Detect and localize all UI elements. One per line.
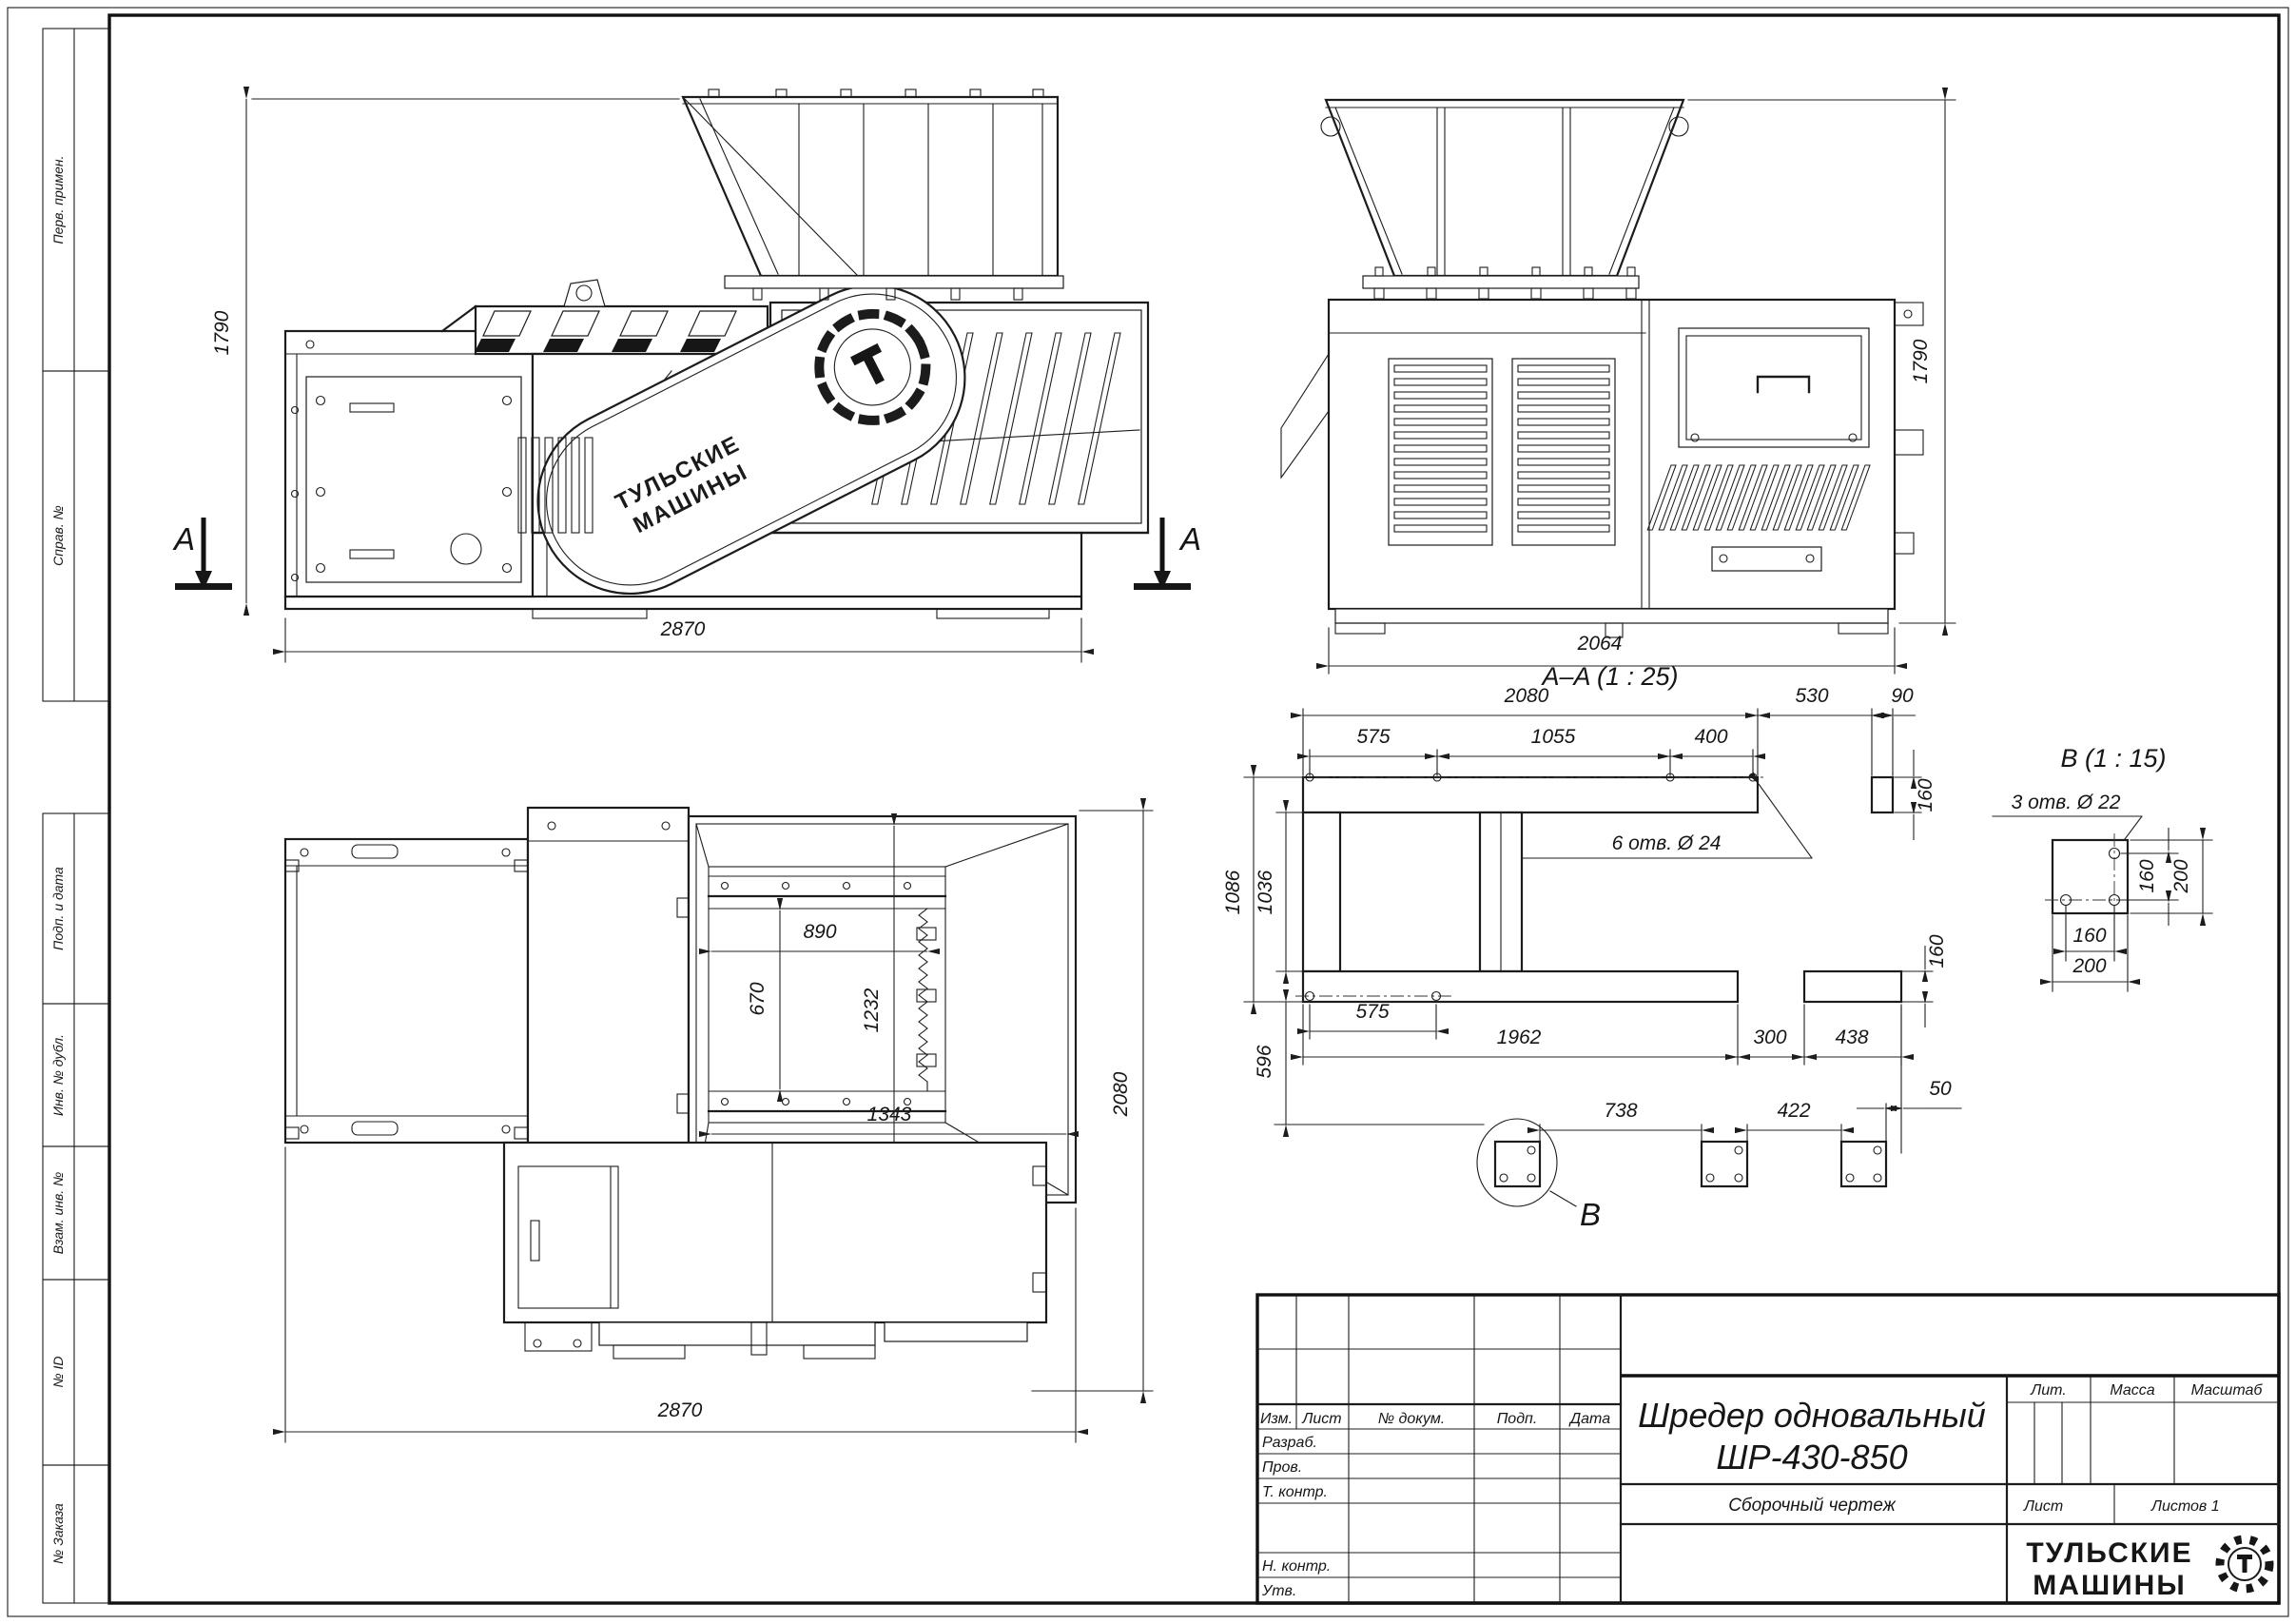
dim-label: 160 (2136, 859, 2158, 892)
tb-row-razrab: Разраб. (1262, 1435, 1317, 1451)
svg-text:A: A (1178, 521, 1201, 557)
dim-label: 1086 (1222, 870, 1244, 914)
foot-plate (1841, 1142, 1886, 1186)
margin-block-sprav-no: Справ. № (43, 371, 109, 701)
doc-title-line1: Шредер одновальный (1638, 1396, 1986, 1435)
tb-scale: Масштаб (2191, 1382, 2264, 1399)
dim-label-side-width: 2064 (1577, 633, 1623, 655)
margin-label: № Заказа (50, 1503, 66, 1564)
margin-label: Взам. инв. № (50, 1172, 66, 1255)
hole-note-aa: 6 отв. Ø 24 (1612, 832, 1722, 854)
dim-label: 1036 (1255, 870, 1276, 914)
margin-block-no-id: № ID (43, 1280, 109, 1465)
brand-line1: ТУЛЬСКИЕ (2026, 1537, 2192, 1569)
dim-label-front-height: 1790 (211, 310, 233, 355)
tb-row-utv: Утв. (1261, 1583, 1296, 1599)
tb-sheets: Листов 1 (2150, 1498, 2220, 1515)
dim-label: 530 (1795, 685, 1828, 707)
margin-block-no-zakaza: № Заказа (43, 1465, 109, 1603)
dim-label: 575 (1355, 1001, 1389, 1023)
dim-label: 1962 (1497, 1027, 1542, 1048)
side-louver-panel-left (1389, 359, 1492, 545)
dim-label: 575 (1356, 726, 1390, 748)
plan-view: 890 670 1232 1343 2080 2870 (285, 808, 1153, 1442)
brand-gear-icon (2220, 1539, 2269, 1589)
side-louver-panel-right (1512, 359, 1615, 545)
detail-b-mark: B (1580, 1197, 1601, 1232)
tb-sheet: Лист (2023, 1498, 2063, 1515)
dim-label: 160 (2072, 925, 2106, 947)
dim-label: 90 (1891, 685, 1914, 707)
dim-label-plan-width: 2870 (657, 1399, 703, 1421)
svg-text:A: A (172, 521, 195, 557)
dim-label-plan-inner-width: 1343 (867, 1104, 912, 1125)
title-block: Изм. Лист № докум. Подп. Дата Разраб. Пр… (1257, 1295, 2279, 1603)
foot-plate (1495, 1142, 1540, 1186)
front-hopper (683, 89, 1063, 300)
dim-label: 596 (1254, 1045, 1275, 1078)
margin-block-inv-dubl: Инв. № дубл. (43, 1004, 109, 1146)
margin-column: Перв. примен. Справ. № Подп. и дата Инв.… (43, 29, 109, 1603)
brand-line2: МАШИНЫ (2033, 1570, 2186, 1601)
section-aa-title: A–A (1 : 25) (1540, 662, 1678, 691)
margin-label: № ID (50, 1356, 66, 1387)
dim-label-plan-open-depth: 670 (747, 982, 769, 1015)
detail-b-title: B (1 : 15) (2060, 744, 2166, 773)
dim-label-front-width: 2870 (660, 618, 706, 640)
tb-col-list: Лист (1301, 1411, 1341, 1427)
detail-view-b: B (1 : 15) 3 отв. Ø 22 160 200 160 200 (1993, 744, 2212, 991)
margin-label: Справ. № (50, 505, 66, 566)
front-view: 1790 ТУЛЬСКИЕ МАШИНЫ (172, 89, 1201, 662)
dim-label: 50 (1929, 1078, 1952, 1100)
tb-col-dokum: № докум. (1378, 1411, 1445, 1427)
margin-label: Инв. № дубл. (50, 1034, 66, 1116)
tb-col-izm: Изм. (1260, 1411, 1293, 1427)
dim-label: 160 (1915, 778, 1936, 812)
section-mark-a-left: A (172, 518, 232, 590)
drawing-sheet: Перв. примен. Справ. № Подп. и дата Инв.… (0, 0, 2296, 1624)
margin-block-podp-data: Подп. и дата (43, 813, 109, 1004)
margin-label: Подп. и дата (50, 867, 66, 950)
dim-label: 738 (1604, 1100, 1637, 1122)
dim-label-plan-depth: 2080 (1110, 1071, 1132, 1117)
doc-title-line2: ШР-430-850 (1716, 1438, 1907, 1477)
margin-label: Перв. примен. (50, 155, 66, 244)
dim-label-plan-open-width: 890 (803, 921, 836, 943)
tb-mass: Масса (2110, 1382, 2154, 1399)
dim-label: 200 (2072, 955, 2106, 977)
dim-label: 300 (1753, 1027, 1786, 1048)
dim-label: 200 (2170, 859, 2192, 893)
dim-label-plan-inner-depth: 1232 (861, 988, 883, 1032)
tb-row-nkontr: Н. контр. (1262, 1558, 1331, 1575)
dim-label: 160 (1926, 934, 1948, 968)
dim-label: 422 (1777, 1100, 1810, 1122)
margin-block-perv-primen: Перв. примен. (43, 29, 109, 371)
doc-subtitle: Сборочный чертеж (1728, 1496, 1897, 1516)
side-view: 2064 1790 (1281, 100, 1955, 674)
tb-col-podp: Подп. (1497, 1411, 1538, 1427)
brand-logo: ТУЛЬСКИЕ МАШИНЫ (2026, 1537, 2269, 1601)
hole-note-b: 3 отв. Ø 22 (2012, 792, 2121, 813)
dim-label-side-height: 1790 (1910, 339, 1932, 383)
dim-label: 438 (1835, 1027, 1868, 1048)
drawing-canvas: Перв. примен. Справ. № Подп. и дата Инв.… (0, 0, 2296, 1624)
margin-block-vzam-inv: Взам. инв. № (43, 1146, 109, 1280)
foot-plate (1702, 1142, 1747, 1186)
section-view-aa: A–A (1 : 25) 6 отв. Ø 24 2080 530 90 575… (1222, 662, 1961, 1232)
dim-label: 400 (1694, 726, 1727, 748)
tb-row-tkontr: Т. контр. (1262, 1484, 1328, 1500)
tb-lit: Лит. (2030, 1382, 2066, 1399)
dim-label: 2080 (1504, 685, 1549, 707)
tb-row-prov: Пров. (1262, 1459, 1302, 1476)
dim-label: 1055 (1531, 726, 1576, 748)
tb-col-data: Дата (1568, 1411, 1610, 1427)
